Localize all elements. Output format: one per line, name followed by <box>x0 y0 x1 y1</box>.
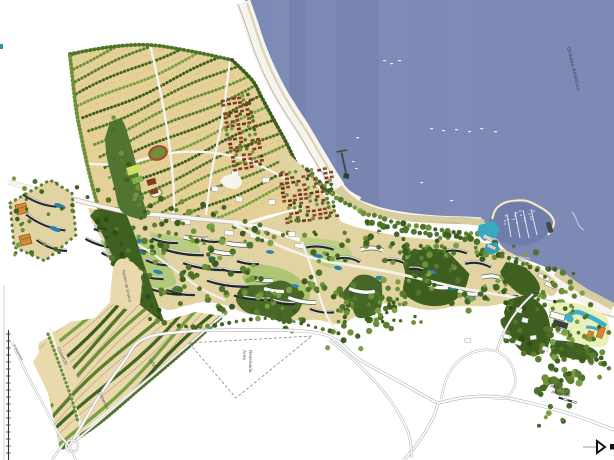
svg-text:Área: Área <box>242 350 248 360</box>
svg-text:Reservada: Reservada <box>248 350 253 373</box>
